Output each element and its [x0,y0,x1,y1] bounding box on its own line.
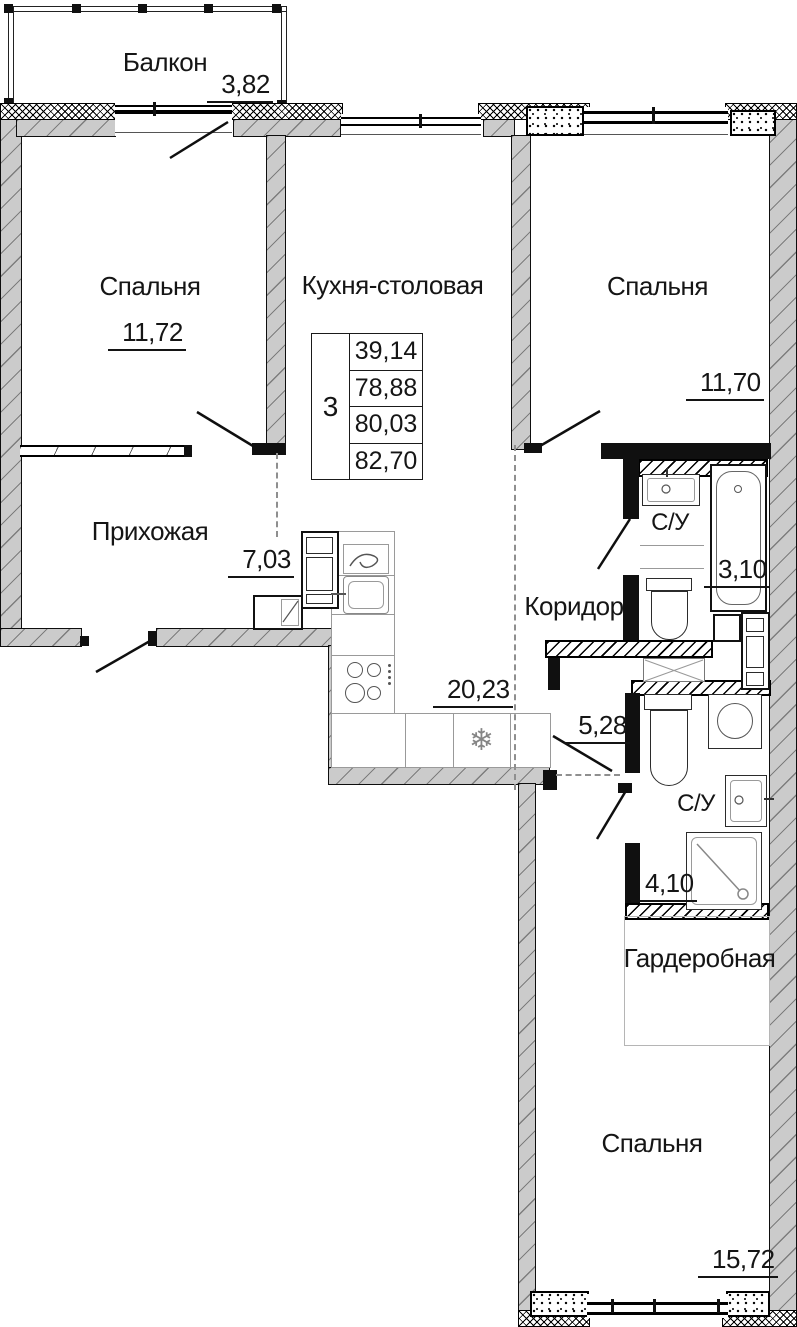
wall-stipple [526,106,584,136]
wall-partition-bedroomTL-kitchen [266,135,286,450]
door-axis-line [556,774,620,776]
window-mullion [419,114,422,128]
cabinet-shelf [746,618,764,632]
stove-knob [388,682,391,685]
area-value: 3,10 [704,555,770,588]
room-area-bathroom-bottom: 4,10 [631,869,695,902]
floor-plan: ❄ 3 39,14 78,88 80,03 82,70 [0,0,797,1327]
area-value: 7,03 [228,545,294,578]
counter-divider [405,713,406,768]
wall-crosshatch [0,103,118,120]
window-line [587,1312,728,1315]
room-area-hallway: 7,03 [226,545,296,578]
fridge-icon: ❄ [453,713,510,768]
wall-entrance [156,628,344,647]
room-label-bathroom-top: С/У [645,510,695,536]
room-area-bedroom-top-right: 11,70 [686,368,762,401]
window-line [115,110,232,114]
railing-post [72,4,81,13]
stove-burner [367,686,381,700]
toilet-bath1-bowl [651,591,688,640]
window-line [584,121,728,124]
room-area-bedroom-top-left: 11,72 [108,318,186,351]
wall-stub [524,443,542,453]
window-sill [341,134,481,135]
kitchen-sink-basin [348,581,384,609]
stove-knob [388,664,391,667]
room-label-balcony: Балкон [110,48,220,77]
railing-post [4,4,13,13]
wall-top-left [16,119,116,137]
window-mullion [652,107,655,124]
wall-exterior-right [769,118,797,1315]
cabinet-shelf [746,636,764,668]
info-area-total: 82,70 [350,443,422,480]
stove-burner [367,663,381,677]
room-label-bathroom-bottom: С/У [671,791,721,817]
area-value: 3,82 [207,70,273,103]
room-label-kitchen-dining: Кухня-столовая [290,271,495,300]
door-frame-stub [543,770,557,790]
window-bedroom-bottom [587,1294,728,1318]
wall-kitchen-bottom [328,767,550,785]
room-area-balcony: 3,82 [205,70,275,103]
apartment-info-table: 3 39,14 78,88 80,03 82,70 [311,333,423,480]
window-mullion [717,1299,720,1313]
toilet-bath2-tank [644,694,692,710]
window-mullion [153,102,156,116]
room-area-kitchen-dining: 20,23 [433,675,509,708]
wall-bedroomTL-hallway [20,445,186,457]
wall-exterior-left-return [0,628,82,647]
room-area-bedroom-bottom: 15,72 [698,1245,774,1278]
wall-stipple [726,1291,770,1317]
hall-cabinet-low-inner [281,599,299,626]
room-label-bedroom-top-right: Спальня [600,272,715,301]
shower-tray-inner [691,837,757,905]
window-balcony [115,102,232,136]
wall-bath1-left-lower [623,575,639,642]
area-value: 15,72 [698,1245,778,1278]
wall-corridor-mid [545,640,713,658]
info-area-living: 39,14 [350,334,422,370]
railing-post [204,4,213,13]
sink-bath2-basin [730,780,762,822]
wall-stipple [730,110,776,136]
toilet-bath1-tank [646,578,692,591]
window-sill [584,134,728,135]
counter-divider [510,713,511,768]
wall-stub [548,658,560,690]
door-swing-bathroom-bottom [597,789,627,839]
zone-line-corridor [514,445,516,790]
info-rooms-count: 3 [312,334,350,479]
wall-top-mid [233,119,341,137]
bathtub-drain [734,485,742,493]
kitchen-counter-bottom [331,713,551,768]
stove-burner [347,662,363,678]
room-area-bathroom-top: 3,10 [704,555,766,588]
area-value: 4,10 [631,869,697,902]
area-value: 11,72 [108,318,186,351]
vent-shaft [643,658,705,682]
window-mullion [611,1299,614,1313]
info-area-2: 80,03 [350,406,422,443]
wall-exterior-left [0,116,22,647]
washing-machine-drum [717,703,753,739]
wall-bath1-left-upper [623,457,639,519]
window-line [584,111,728,114]
counter-divider [331,614,395,615]
wall-crosshatch [231,103,343,120]
door-swing-bedroom-left [197,412,253,446]
shelf-line [640,545,704,546]
toilet-bath2-bowl [650,710,688,786]
cabinet-shelf [746,672,764,686]
window-line [587,1302,728,1305]
zone-line-hallway-kitchen [276,453,278,537]
room-label-wardrobe: Гардеробная [622,944,777,973]
door-swing-bedroom-right [540,411,600,446]
door-swing-bathroom-top [598,519,630,569]
area-value: 5,28 [564,711,630,744]
window-sill [115,132,232,133]
wardrobe-zone-outline [624,916,770,1046]
room-label-bedroom-bottom: Спальня [597,1129,707,1158]
counter-divider [331,655,395,656]
area-value: 11,70 [686,368,764,401]
kitchen-hood [343,544,389,574]
room-label-hallway: Прихожая [90,517,210,546]
sink-bath1-basin [647,478,695,502]
cabinet-box [713,614,741,642]
stove-knob [388,670,391,673]
info-area-1: 78,88 [350,370,422,407]
room-area-corridor: 5,28 [563,711,631,744]
stove-burner [345,683,365,703]
wall-endcap [184,445,192,457]
railing-post [138,4,147,13]
hall-wardrobe-shelf [306,557,333,591]
window-mullion [653,1299,656,1313]
window-line [341,117,481,119]
shelf-line [640,568,704,569]
balcony-railing-top [8,6,287,12]
window-kitchen [341,114,481,137]
window-bedroom-top-right [584,107,728,137]
hall-wardrobe-shelf [306,594,333,604]
room-label-bedroom-top-left: Спальня [95,272,205,301]
door-frame-stub [618,783,632,793]
hall-wardrobe-shelf [306,537,333,554]
wall-bedroom-bottom-left [518,783,536,1315]
wall-partition-kitchen-bedroomTR [511,135,531,450]
door-frame-stub [80,636,89,646]
stove-knob [388,676,391,679]
door-swing-entrance [96,641,150,672]
room-label-corridor: Коридор [524,592,624,621]
balcony-railing-left [8,6,14,106]
area-value: 20,23 [433,675,513,708]
wall-stipple [530,1291,589,1317]
wall-corner [252,443,286,455]
balcony-railing-right [281,6,287,108]
door-frame-stub [148,631,157,646]
window-line [341,124,481,126]
railing-post [272,4,281,13]
window-line [115,105,232,107]
